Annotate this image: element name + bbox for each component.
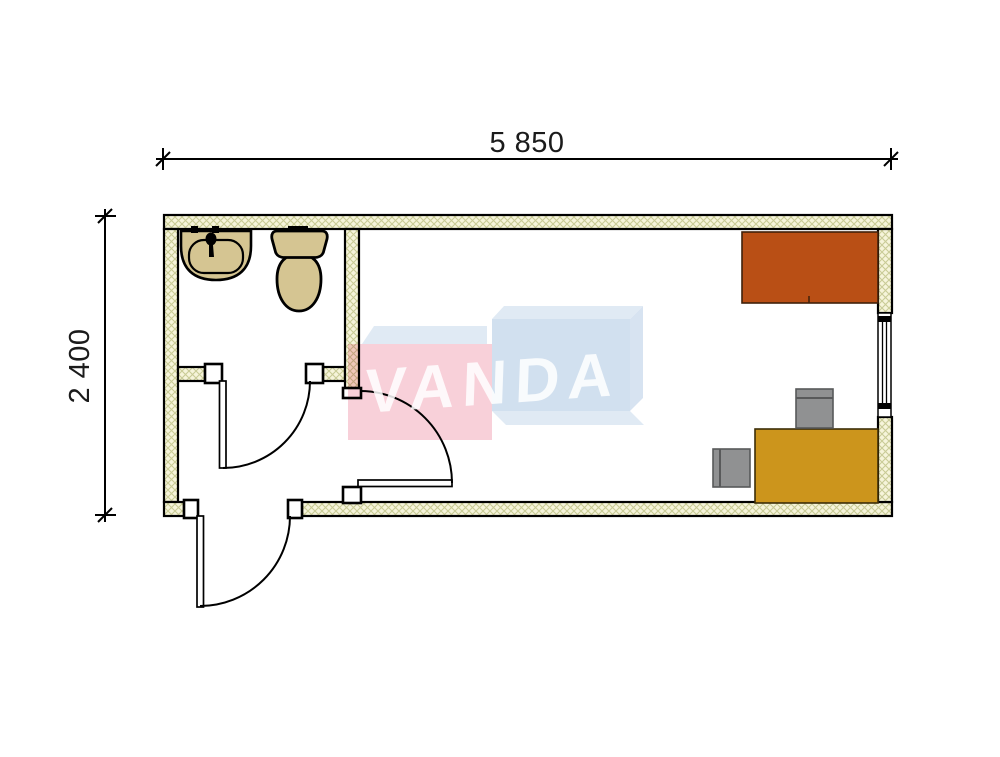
door-leaf-mainroom: [358, 480, 452, 487]
dimension-top: 5 850: [156, 127, 898, 170]
window-plan-symbol: [878, 313, 891, 417]
desk: [755, 429, 878, 503]
bathroom-fixtures: [181, 226, 327, 311]
toilet-plan-symbol: [272, 226, 328, 311]
wardrobe-body: [742, 232, 878, 303]
wall-left: [164, 229, 178, 502]
furniture: [713, 232, 878, 503]
door-leaf-bathroom: [220, 381, 227, 468]
wall-right-upper: [878, 229, 892, 313]
toilet-bowl: [277, 254, 321, 311]
watermark-blue-top: [492, 306, 643, 319]
wall-top: [164, 215, 892, 229]
door-arc-entrance: [200, 516, 290, 606]
jamb-partition-bottom: [343, 487, 361, 503]
chair-side: [713, 449, 750, 487]
door-swing-symbol-entrance: [197, 516, 290, 607]
height-dimension-label: 2 400: [64, 328, 96, 403]
window-frame: [878, 313, 891, 417]
window-cap-bottom: [878, 403, 891, 409]
dimension-left: 2 400: [64, 209, 116, 522]
faucet-handle-left: [191, 226, 198, 233]
wall-bathroom-stub-right: [323, 367, 345, 381]
door-arc-bathroom: [223, 381, 310, 468]
jamb-entrance-right: [288, 500, 302, 518]
watermark-blue-side: [630, 306, 643, 411]
floorplan-svg: 5 850 2 400: [0, 0, 1000, 757]
jamb-entrance-left: [184, 500, 198, 518]
window-cap-top: [878, 316, 891, 322]
chair-side-seat: [713, 449, 750, 487]
door-jambs: [184, 364, 361, 518]
chair-top-seat: [796, 389, 833, 428]
toilet-tank: [272, 231, 328, 258]
width-dimension-label: 5 850: [489, 127, 564, 159]
jamb-bathroom-right: [306, 364, 323, 383]
wall-bottom-left-stub: [164, 502, 184, 516]
watermark-band: [362, 326, 487, 344]
watermark: VANDA: [348, 306, 644, 440]
wall-bottom: [302, 502, 892, 516]
wardrobe: [742, 232, 878, 303]
faucet-head: [206, 233, 217, 246]
door-leaf-entrance: [197, 516, 204, 607]
faucet-handle-right: [212, 226, 219, 233]
door-swing-symbol-bathroom: [220, 381, 311, 468]
toilet-flush-fitting: [288, 226, 308, 232]
sink-plan-symbol: [181, 226, 251, 280]
jamb-bathroom-left: [205, 364, 222, 383]
wall-right-lower: [878, 417, 892, 502]
floorplan-canvas: 5 850 2 400: [0, 0, 1000, 757]
wall-bathroom-stub-left: [178, 367, 205, 381]
chair-top: [796, 389, 833, 428]
